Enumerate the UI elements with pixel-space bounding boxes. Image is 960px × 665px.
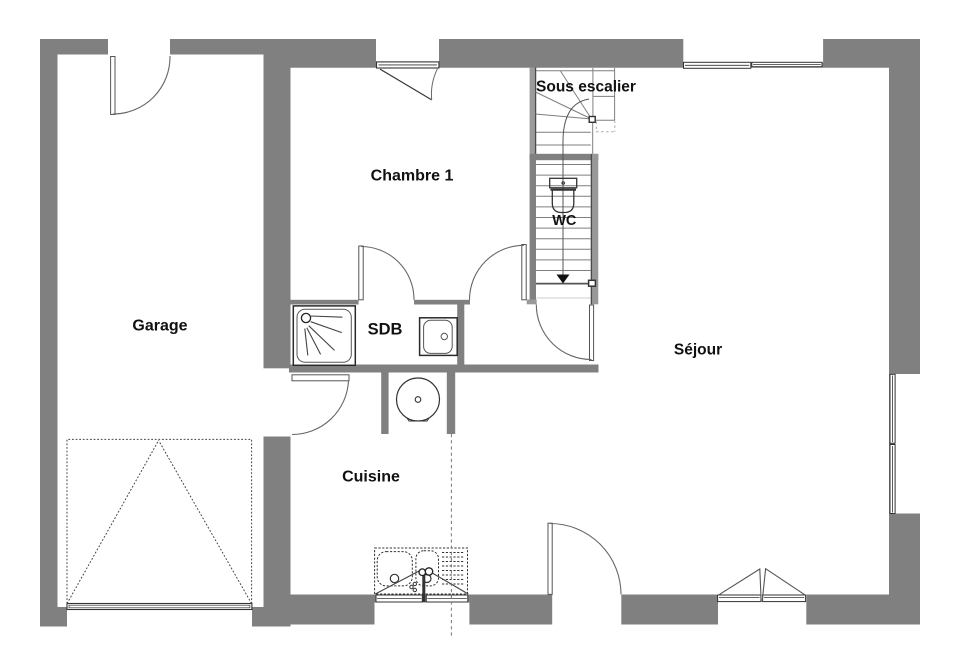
svg-text:Garage: Garage [132, 318, 187, 335]
svg-text:Séjour: Séjour [674, 342, 722, 359]
svg-text:Cuisine: Cuisine [342, 469, 400, 486]
svg-text:Chambre 1: Chambre 1 [371, 168, 454, 185]
svg-text:Sous escalier: Sous escalier [536, 79, 636, 96]
svg-text:WC: WC [552, 213, 577, 229]
svg-text:SDB: SDB [368, 321, 403, 339]
